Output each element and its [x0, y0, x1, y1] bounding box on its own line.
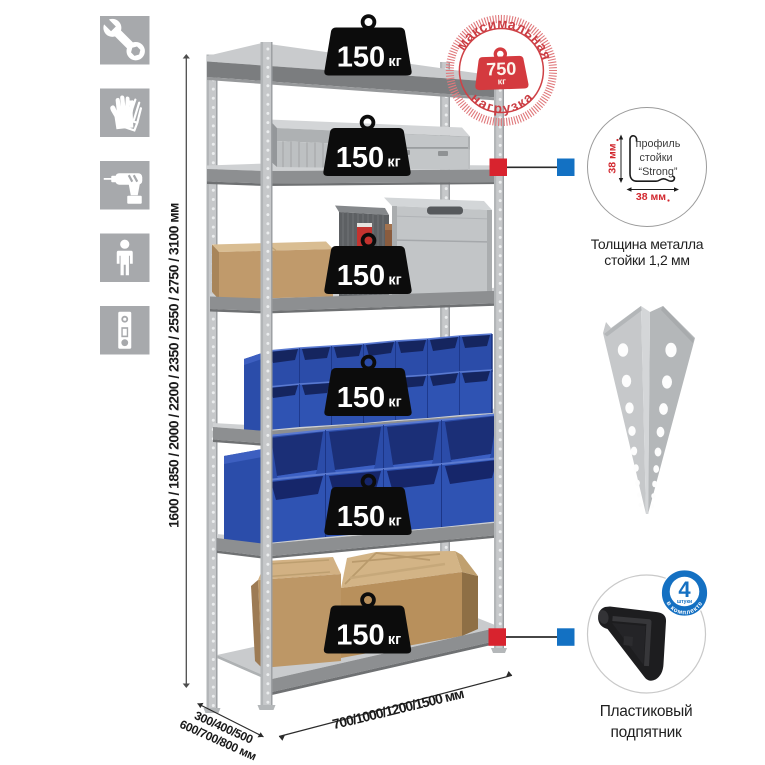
svg-text:кг: кг [388, 54, 401, 70]
svg-text:150: 150 [336, 620, 384, 652]
svg-text:кг: кг [388, 632, 401, 648]
svg-text:150: 150 [337, 382, 385, 414]
svg-text:150: 150 [337, 260, 385, 292]
svg-text:кг: кг [497, 76, 506, 86]
svg-text:кг: кг [388, 514, 401, 530]
svg-text:“Strong”: “Strong” [638, 166, 677, 178]
svg-text:стойки: стойки [639, 152, 672, 164]
svg-text:1600 / 1850 / 2000 / 2200 / 23: 1600 / 1850 / 2000 / 2200 / 2350 / 2550 … [166, 203, 182, 528]
svg-text:Пластиковый: Пластиковый [600, 703, 693, 720]
svg-text:подпятник: подпятник [611, 724, 682, 741]
svg-text:38 мм: 38 мм [607, 143, 619, 173]
svg-text:штуки: штуки [677, 599, 692, 605]
svg-text:Толщина металла: Толщина металла [591, 236, 704, 252]
svg-text:кг: кг [388, 395, 401, 411]
svg-text:150: 150 [337, 501, 385, 533]
svg-text:кг: кг [388, 273, 401, 289]
svg-text:150: 150 [336, 142, 384, 174]
svg-text:кг: кг [387, 155, 400, 171]
svg-text:профиль: профиль [636, 138, 681, 150]
svg-text:стойки 1,2 мм: стойки 1,2 мм [604, 252, 689, 268]
svg-text:150: 150 [337, 42, 385, 74]
svg-text:38 мм: 38 мм [636, 191, 666, 203]
